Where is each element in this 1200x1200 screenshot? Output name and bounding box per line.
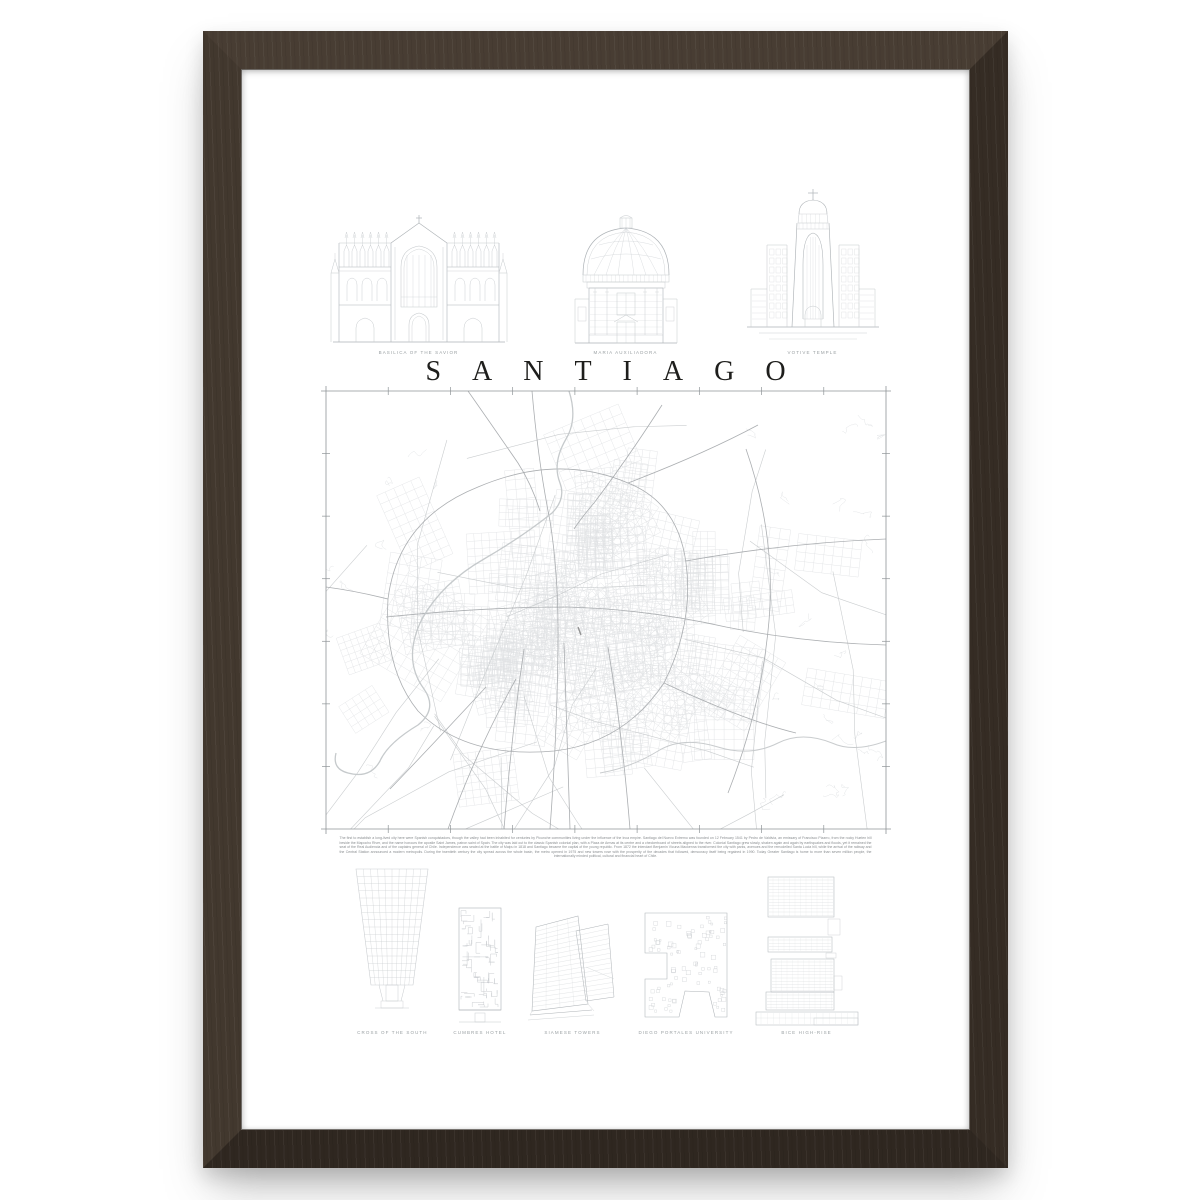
basilica-of-the-savior-drawing bbox=[329, 209, 509, 345]
cross-of-the-south-drawing bbox=[353, 867, 431, 1025]
building-caption: CROSS OF THE SOUTH bbox=[357, 1030, 427, 1035]
poster-scene: BASILICA OF THE SAVIOR MARIA AUXILIADORA… bbox=[0, 0, 1200, 1200]
building-caption: VOTIVE TEMPLE bbox=[788, 350, 838, 355]
elevation-bice-high-rise: BICE HIGH-RISE bbox=[756, 877, 858, 1035]
elevation-basilica-of-the-savior: BASILICA OF THE SAVIOR bbox=[329, 209, 509, 355]
poster-paper: BASILICA OF THE SAVIOR MARIA AUXILIADORA… bbox=[241, 69, 970, 1130]
building-caption: BICE HIGH-RISE bbox=[781, 1030, 831, 1035]
elevation-siamese-towers: SIAMESE TOWERS bbox=[528, 907, 616, 1035]
bottom-elevations-row: CROSS OF THE SOUTH CUMBRES HOTEL SIAMESE… bbox=[353, 867, 857, 1035]
elevation-maria-auxiliadora: MARIA AUXILIADORA bbox=[573, 213, 679, 355]
building-caption: CUMBRES HOTEL bbox=[453, 1030, 506, 1035]
building-caption: SIAMESE TOWERS bbox=[544, 1030, 600, 1035]
siamese-towers-drawing bbox=[528, 907, 616, 1025]
maria-auxiliadora-drawing bbox=[573, 213, 679, 345]
top-elevations-row: BASILICA OF THE SAVIOR MARIA AUXILIADORA… bbox=[329, 187, 883, 355]
diego-portales-university-drawing bbox=[643, 907, 729, 1025]
print-artwork: BASILICA OF THE SAVIOR MARIA AUXILIADORA… bbox=[241, 69, 970, 1130]
votive-temple-drawing bbox=[743, 187, 883, 345]
building-caption: BASILICA OF THE SAVIOR bbox=[379, 350, 459, 355]
street-map-drawing bbox=[326, 391, 886, 829]
elevation-diego-portales-university: DIEGO PORTALES UNIVERSITY bbox=[638, 907, 733, 1035]
building-caption: MARIA AUXILIADORA bbox=[594, 350, 658, 355]
poster-title: SANTIAGO bbox=[425, 356, 816, 388]
building-caption: DIEGO PORTALES UNIVERSITY bbox=[638, 1030, 733, 1035]
bice-high-rise-drawing bbox=[756, 877, 858, 1025]
city-description: The first to establish a long-lived city… bbox=[340, 836, 872, 859]
elevation-votive-temple: VOTIVE TEMPLE bbox=[743, 187, 883, 355]
cumbres-hotel-drawing bbox=[458, 907, 502, 1025]
city-map bbox=[326, 391, 886, 829]
picture-frame: BASILICA OF THE SAVIOR MARIA AUXILIADORA… bbox=[203, 31, 1008, 1168]
elevation-cross-of-the-south: CROSS OF THE SOUTH bbox=[353, 867, 431, 1035]
elevation-cumbres-hotel: CUMBRES HOTEL bbox=[453, 907, 506, 1035]
